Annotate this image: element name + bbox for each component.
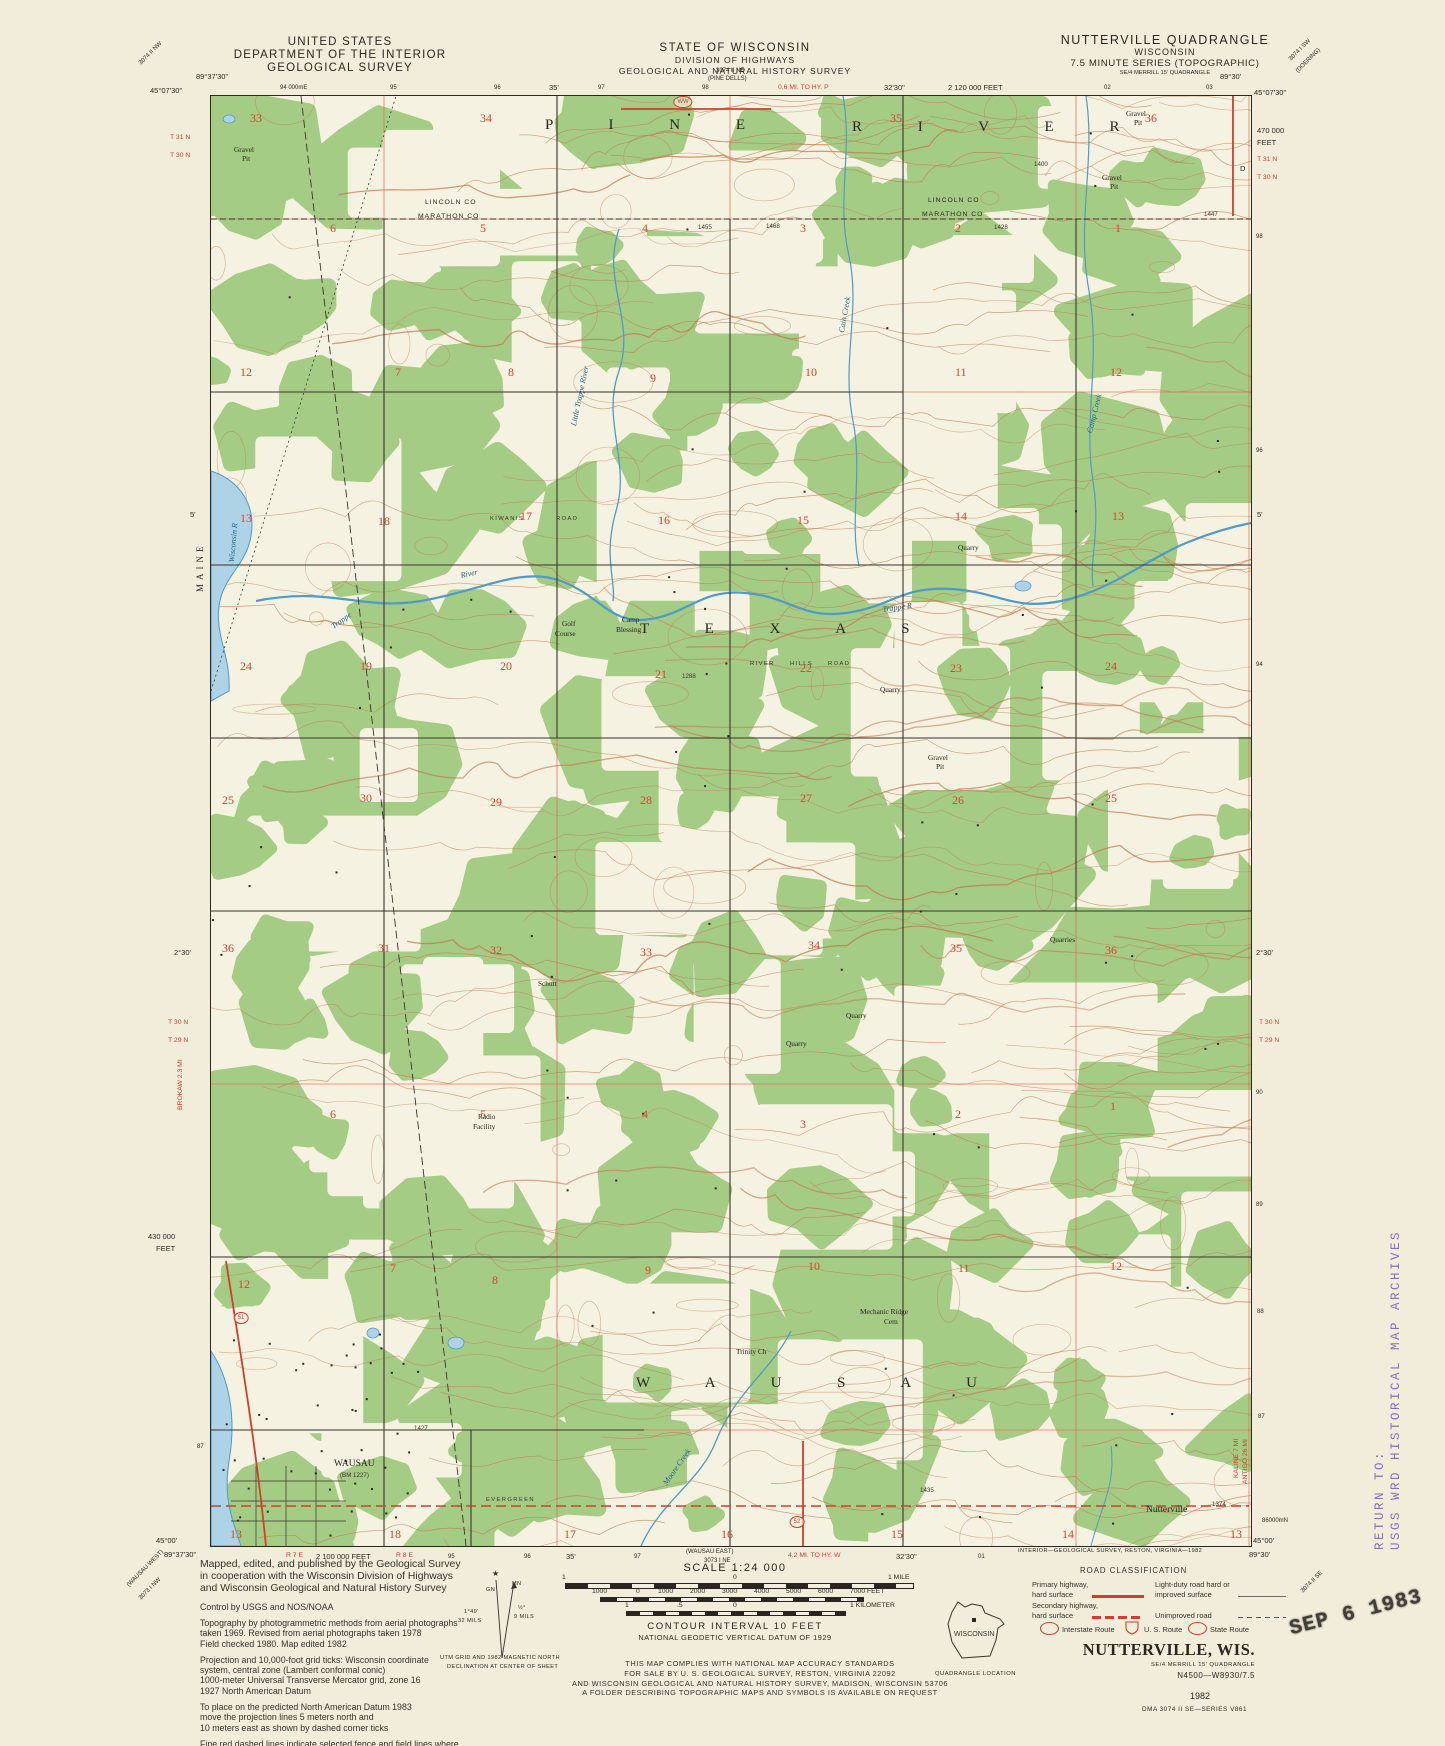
margin-label: (WAUSAU EAST) — [686, 1549, 733, 1555]
section-number: 18 — [378, 515, 390, 527]
sheet-name: NUTTERVILLE, WIS. — [1055, 1640, 1255, 1660]
map-label: W A U S A U — [636, 1376, 1003, 1391]
map-label: 1400 — [1034, 162, 1048, 168]
us-route-shield-icon — [1124, 1620, 1140, 1635]
section-number: 8 — [508, 366, 514, 378]
declination-diagram: ★ — [440, 1566, 570, 1666]
light-duty-label: Light-duty road hard or — [1155, 1580, 1230, 1589]
scale-label: 0 — [733, 1575, 737, 1582]
margin-label: 4.2 MI. TO HY. W — [788, 1553, 841, 1560]
scale-label: 1 MILE — [888, 1575, 910, 1582]
scale-label: .5 — [677, 1603, 683, 1610]
margin-label: 32'30" — [884, 84, 905, 92]
map-label: Gravel — [1126, 110, 1146, 117]
primary-highway-sample — [1092, 1595, 1144, 1598]
section-number: 32 — [490, 944, 502, 956]
section-number: 6 — [330, 222, 336, 234]
map-label: 1447 — [1204, 212, 1218, 218]
map-label: LINCOLN CO — [928, 198, 980, 205]
map-label: Schutt — [538, 980, 557, 987]
margin-label: 32'30" — [896, 1553, 917, 1561]
scale-label: 3000 — [722, 1589, 737, 1596]
margin-label: 2 100 000 FEET — [316, 1553, 371, 1561]
margin-label: 3074 II SE — [1300, 1570, 1324, 1594]
map-area — [210, 95, 1252, 1547]
wisconsin-state-label: WISCONSIN — [954, 1631, 994, 1638]
section-number: 23 — [950, 662, 962, 674]
section-number: 36 — [1145, 112, 1157, 124]
section-number: 34 — [480, 112, 492, 124]
interstate-route-icon — [1040, 1622, 1059, 1635]
light-duty-label2: improved surface — [1155, 1590, 1212, 1599]
usgs-header: UNITED STATESDEPARTMENT OF THE INTERIORG… — [205, 36, 475, 75]
margin-label: 45°00' — [1253, 1537, 1274, 1545]
margin-label: INTERIOR—GEOLOGICAL SURVEY, RESTON, VIRG… — [1018, 1549, 1202, 1555]
margin-label: D — [1240, 165, 1245, 173]
secondary-highway-label2: hard surface — [1032, 1611, 1073, 1620]
section-number: 9 — [645, 1264, 651, 1276]
margin-label: T 30 N — [1259, 1020, 1279, 1027]
map-label: Gravel — [928, 754, 948, 761]
section-number: 24 — [1105, 660, 1117, 672]
margin-label: 97 — [598, 85, 605, 91]
margin-label: 94 000mE — [280, 85, 307, 91]
sheet-subtitle: SE/4 MERRILL 15' QUADRANGLE — [1055, 1662, 1255, 1668]
map-label: Facility — [473, 1123, 495, 1130]
terrain-art — [211, 96, 1251, 1546]
map-label: Quarry — [958, 544, 979, 551]
scale-label: 1 — [562, 1575, 566, 1582]
margin-label: 01 — [978, 1554, 985, 1560]
map-label: ROAD — [556, 517, 578, 523]
scale-label: 1 — [625, 1603, 629, 1610]
margin-label: 89°30' — [1220, 73, 1241, 81]
map-label: Nutterville — [1146, 1506, 1187, 1516]
margin-label: R 8 E — [396, 1553, 413, 1560]
compliance-block: THIS MAP COMPLIES WITH NATIONAL MAP ACCU… — [555, 1659, 965, 1698]
margin-label: 89°37'30" — [164, 1551, 196, 1559]
margin-label: T 30 N — [168, 1020, 188, 1027]
unimproved-road-sample — [1238, 1617, 1286, 1618]
declination-label: 32 MILS — [458, 1619, 482, 1625]
scale-label: 1000 — [658, 1589, 673, 1596]
section-number: 9 — [650, 372, 656, 384]
section-number: 35 — [950, 942, 962, 954]
section-number: 4 — [642, 222, 648, 234]
section-number: 30 — [360, 792, 372, 804]
section-number: 29 — [490, 796, 502, 808]
margin-label: 5' — [1257, 511, 1263, 519]
margin-label: T 30 N — [1257, 175, 1277, 182]
map-label: LINCOLN CO — [425, 200, 477, 207]
scale-label: 2000 — [690, 1589, 705, 1596]
section-number: 10 — [808, 1260, 820, 1272]
margin-label: 87 — [1258, 1414, 1265, 1420]
quad-location-dot — [972, 1618, 976, 1622]
margin-label: 89°37'30" — [196, 73, 228, 81]
section-number: 1 — [1110, 1100, 1116, 1112]
map-label: 1374 — [1212, 1502, 1226, 1508]
section-number: 11 — [955, 366, 967, 378]
section-number: 27 — [800, 792, 812, 804]
margin-label: BROKAW 2.3 MI — [178, 1059, 185, 1110]
map-label: Golf — [562, 620, 575, 627]
declination-label: 1°49' — [464, 1610, 479, 1616]
margin-label: 97 — [634, 1554, 641, 1560]
margin-label: T 29 N — [1259, 1038, 1279, 1045]
section-number: 25 — [222, 794, 234, 806]
section-number: 1 — [1115, 222, 1121, 234]
margin-label: 95 — [390, 85, 397, 91]
section-number: 11 — [958, 1262, 970, 1274]
map-label: 1435 — [920, 1488, 934, 1494]
quadrangle-location-map: WISCONSIN — [938, 1598, 1016, 1668]
contour-interval-note: CONTOUR INTERVAL 10 FEET — [610, 1621, 860, 1632]
section-number: 14 — [955, 510, 967, 522]
primary-highway-label2: hard surface — [1032, 1590, 1073, 1599]
map-label: ROAD — [828, 662, 850, 668]
declination-label: UTM GRID AND 1982 MAGNETIC NORTH — [440, 1656, 560, 1662]
section-number: 33 — [640, 946, 652, 958]
section-number: 6 — [330, 1108, 336, 1120]
margin-label: 35' — [566, 1553, 576, 1561]
scale-label: 0 — [733, 1603, 737, 1610]
map-label: Pit — [936, 763, 944, 770]
margin-label: 2°30' — [1256, 949, 1273, 957]
margin-label: 96 — [524, 1554, 531, 1560]
unimproved-road-label: Unimproved road — [1155, 1611, 1212, 1620]
route-marker: 51 — [234, 1312, 249, 1324]
section-number: 15 — [797, 514, 809, 526]
margin-label: FEET — [1257, 139, 1276, 147]
map-label: 1428 — [994, 225, 1008, 231]
section-number: 36 — [222, 942, 234, 954]
section-number: 3 — [800, 222, 806, 234]
route-marker: 52 — [790, 1516, 805, 1528]
section-number: 21 — [655, 668, 667, 680]
section-number: 5 — [480, 222, 486, 234]
map-label: Gravel — [234, 146, 254, 153]
datum-note: NATIONAL GEODETIC VERTICAL DATUM OF 1929 — [610, 1633, 860, 1642]
section-number: 31 — [378, 942, 390, 954]
margin-label: 2°30' — [174, 949, 191, 957]
map-label: T E X A S — [640, 622, 935, 637]
map-label: Blessing — [616, 626, 641, 633]
margin-label: 2 120 000 FEET — [948, 84, 1003, 92]
margin-label: 45°07'30" — [150, 87, 182, 95]
section-number: 28 — [640, 794, 652, 806]
declination-label: 9 MILS — [514, 1615, 534, 1621]
section-number: 17 — [564, 1528, 576, 1540]
section-number: 25 — [1105, 792, 1117, 804]
margin-label: (PINE DELLS) — [708, 76, 747, 82]
margin-label: 96 — [494, 85, 501, 91]
margin-label: 86000mN — [1262, 1518, 1288, 1524]
section-number: 12 — [240, 366, 252, 378]
section-number: 13 — [1230, 1528, 1242, 1540]
map-label: Trinity Ch — [736, 1348, 766, 1355]
declination-label: DECLINATION AT CENTER OF SHEET — [447, 1665, 558, 1671]
map-label: R I V E R — [852, 120, 1145, 135]
scale-title: SCALE 1:24 000 — [635, 1562, 835, 1574]
state-route-label: State Route — [1210, 1625, 1249, 1634]
section-number: 7 — [395, 366, 401, 378]
map-label: RIVER — [750, 662, 775, 668]
section-number: 16 — [658, 514, 670, 526]
sheet-year: 1982 — [1055, 1691, 1210, 1701]
margin-label: 96 — [1256, 448, 1263, 454]
margin-label: 88 — [1257, 1309, 1264, 1315]
declination-label: MN — [512, 1582, 522, 1588]
margin-label: 430 000 — [148, 1233, 175, 1241]
margin-label: T 30 N — [170, 153, 190, 160]
margin-label: 35' — [549, 84, 559, 92]
secondary-highway-sample — [1092, 1616, 1144, 1619]
scale-label: 0 — [636, 1589, 640, 1596]
margin-label: 98 — [1256, 234, 1263, 240]
margin-label: 45°00' — [156, 1537, 177, 1545]
map-label: KIWANIS — [490, 517, 524, 523]
state-route-icon — [1188, 1622, 1207, 1635]
sheet-code: N4500—W8930/7.5 — [1055, 1671, 1255, 1680]
scale-label: 4000 — [754, 1589, 769, 1596]
section-number: 13 — [1112, 510, 1124, 522]
margin-label: 470 000 — [1257, 127, 1284, 135]
title-block: NUTTERVILLE, WIS. SE/4 MERRILL 15' QUADR… — [1055, 1640, 1255, 1713]
margin-label: 45°07'30" — [1254, 89, 1286, 97]
sheet-series: DMA 3074 II SE—SERIES V861 — [1055, 1706, 1247, 1713]
map-label: 1427 — [414, 1426, 428, 1432]
margin-label: 89 — [1256, 1202, 1263, 1208]
margin-label: 3073 I NE — [704, 1558, 731, 1564]
scale-label: 1000 — [592, 1589, 607, 1596]
margin-label: FEET — [156, 1245, 175, 1253]
quad-title-header: NUTTERVILLE QUADRANGLEWISCONSIN7.5 MINUT… — [1020, 33, 1310, 77]
quadrangle-location-caption: QUADRANGLE LOCATION — [928, 1671, 1023, 1677]
margin-label: 02 — [1104, 85, 1111, 91]
map-label: Quarry — [786, 1040, 807, 1047]
section-number: 2 — [955, 222, 961, 234]
section-number: 34 — [808, 939, 820, 951]
margin-label: 0.6 MI. TO HY. P — [778, 85, 829, 92]
map-label: P I N E — [545, 118, 771, 133]
scalebar-feet — [600, 1597, 864, 1602]
declination-label: ½° — [518, 1606, 526, 1612]
section-number: 13 — [240, 512, 252, 524]
scale-label: 5000 — [786, 1589, 801, 1596]
map-label: Quarry — [846, 1012, 867, 1019]
map-label: HILLS — [790, 662, 813, 668]
archive-stamp: RETURN TO:USGS WRD HISTORICAL MAP ARCHIV… — [1372, 1130, 1404, 1550]
margin-label: 3074 II NE — [716, 68, 744, 74]
section-number: 13 — [230, 1528, 242, 1540]
map-label: Pit — [1110, 183, 1118, 190]
margin-label: 90 — [1256, 1090, 1263, 1096]
margin-label: 89°30' — [1249, 1551, 1270, 1559]
map-label: Quarry — [880, 686, 901, 693]
scale-label: 6000 — [818, 1589, 833, 1596]
section-number: 15 — [891, 1528, 903, 1540]
section-number: 7 — [390, 1262, 396, 1274]
map-label: MARATHON CO — [418, 214, 479, 221]
scalebar-km — [626, 1611, 846, 1616]
map-label: EVERGREEN — [486, 1498, 535, 1504]
svg-text:★: ★ — [492, 1569, 499, 1578]
margin-label: T 31 N — [1257, 157, 1277, 164]
section-number: 24 — [240, 660, 252, 672]
road-classification-title: ROAD CLASSIFICATION — [1080, 1566, 1187, 1575]
interstate-route-label: Interstate Route — [1062, 1625, 1115, 1634]
map-label: Radio — [478, 1113, 495, 1120]
margin-label: T 31 N — [170, 135, 190, 142]
section-number: 26 — [952, 794, 964, 806]
map-label: MARATHON CO — [922, 212, 983, 219]
map-label: (BM 1227) — [340, 1473, 369, 1479]
section-number: 10 — [805, 366, 817, 378]
topo-map-sheet: UNITED STATESDEPARTMENT OF THE INTERIORG… — [0, 0, 1445, 1746]
margin-label: 3074 II NW — [138, 41, 163, 66]
map-label: Pit — [242, 155, 250, 162]
map-label: 1468 — [766, 224, 780, 230]
scale-label: 7000 FEET — [850, 1589, 884, 1596]
map-label: Quarries — [1050, 936, 1075, 943]
margin-label: 5' — [190, 511, 196, 519]
map-label: 1455 — [698, 225, 712, 231]
scale-label: 1 KILOMETER — [850, 1603, 895, 1610]
map-label: 1288 — [682, 674, 696, 680]
light-duty-sample — [1238, 1596, 1286, 1597]
map-label: Gravel — [1102, 174, 1122, 181]
section-number: 12 — [1110, 366, 1122, 378]
section-number: 16 — [721, 1528, 733, 1540]
date-stamp: SEP 6 1983 — [1287, 1586, 1425, 1641]
secondary-highway-label: Secondary highway, — [1032, 1601, 1098, 1610]
section-number: 12 — [1110, 1260, 1122, 1272]
us-route-label: U. S. Route — [1144, 1625, 1182, 1634]
section-number: 36 — [1105, 944, 1117, 956]
map-label: Pit — [1134, 119, 1142, 126]
margin-label: T 29 N — [168, 1038, 188, 1045]
section-number: 3 — [800, 1118, 806, 1130]
map-label: Course — [555, 630, 576, 637]
margin-label: 95 — [448, 1554, 455, 1560]
section-number: 8 — [492, 1274, 498, 1286]
margin-label: 94 — [1256, 662, 1263, 668]
margin-label: KALINE 7 MI — [1234, 1439, 1241, 1478]
section-number: 14 — [1062, 1528, 1074, 1540]
margin-label: 98 — [702, 85, 709, 91]
section-number: 33 — [250, 112, 262, 124]
map-label: Camp — [622, 616, 639, 623]
primary-highway-label: Primary highway, — [1032, 1580, 1088, 1589]
section-number: 2 — [955, 1108, 961, 1120]
declination-label: GN — [486, 1588, 495, 1594]
section-number: 12 — [238, 1278, 250, 1290]
section-number: 19 — [360, 660, 372, 672]
margin-label: 3073 I NW — [138, 1577, 162, 1601]
section-number: 18 — [389, 1528, 401, 1540]
margin-label: 03 — [1206, 85, 1213, 91]
margin-label: MAINE — [196, 543, 205, 593]
section-number: 20 — [500, 660, 512, 672]
margin-label: ANTIGO 26 MI — [1243, 1439, 1250, 1484]
margin-label: R 7 E — [286, 1553, 303, 1560]
map-label: Mechanic Ridge — [860, 1308, 908, 1315]
margin-label: 87 — [197, 1444, 204, 1450]
map-label: Cem — [884, 1318, 898, 1325]
map-label: WAUSAU — [334, 1460, 375, 1470]
section-number: 4 — [642, 1108, 648, 1120]
